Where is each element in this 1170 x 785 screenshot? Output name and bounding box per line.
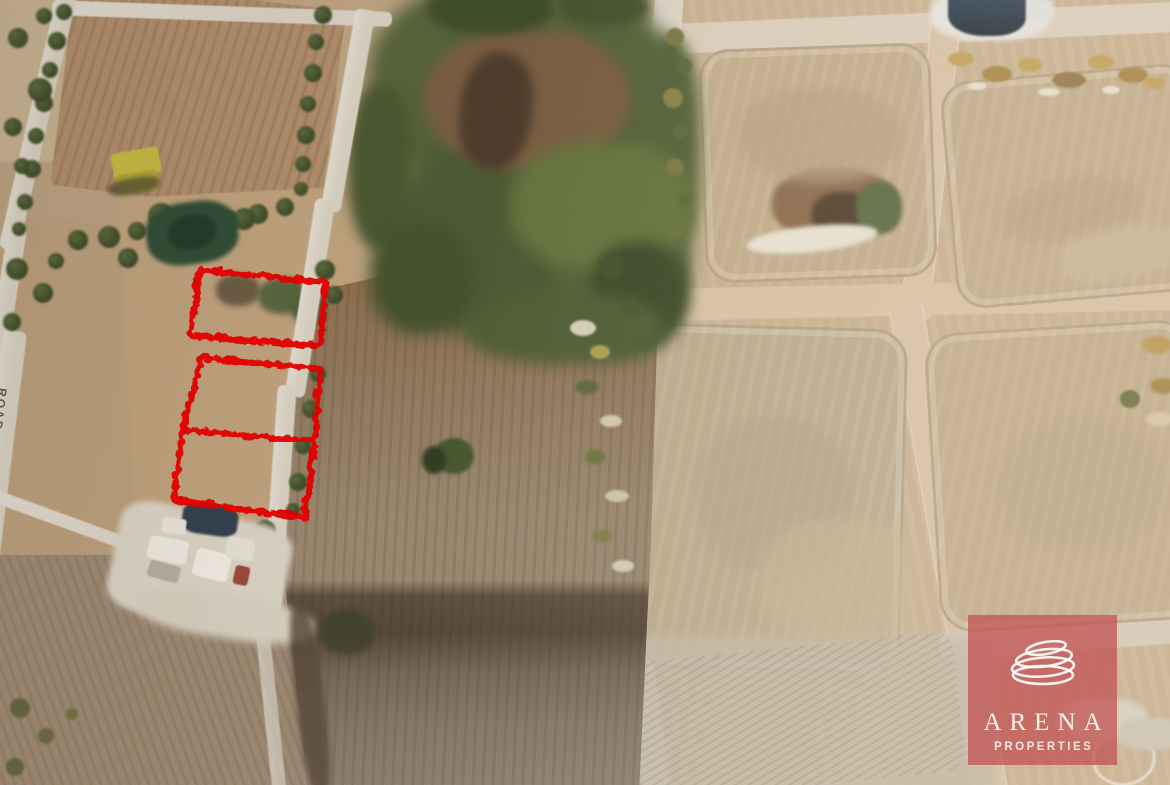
- rubble-patch: [1146, 412, 1170, 426]
- scrub-patch: [605, 490, 629, 502]
- terrain-patch: [1120, 390, 1140, 408]
- scrub-patch: [10, 698, 30, 718]
- rubble-patch: [1038, 88, 1060, 96]
- satellite-map: ROAD ARENA PROPERTIES: [0, 0, 1170, 785]
- scrub-patch: [673, 123, 689, 139]
- scrub-patch: [38, 728, 54, 744]
- rubble-patch: [982, 66, 1012, 82]
- tree: [308, 34, 324, 50]
- scrub-patch: [6, 758, 24, 776]
- terrain-patch: [738, 88, 903, 183]
- tree: [128, 222, 146, 240]
- tree: [28, 128, 44, 144]
- tree: [68, 230, 88, 250]
- terrain-patch: [758, 518, 923, 643]
- tree: [4, 118, 22, 136]
- tree: [28, 78, 52, 102]
- rubble-patch: [1052, 72, 1086, 88]
- rubble-patch: [1143, 77, 1165, 89]
- tree: [286, 503, 300, 517]
- scrub-patch: [66, 708, 78, 720]
- rubble-patch: [1102, 86, 1120, 94]
- tree: [33, 283, 53, 303]
- scrub-patch: [676, 58, 692, 74]
- scrub-patch: [668, 223, 684, 239]
- scrub-patch: [570, 320, 596, 336]
- rubble-patch: [1018, 58, 1042, 72]
- building: [161, 516, 187, 535]
- terrain-patch: [320, 610, 375, 655]
- tree: [36, 8, 52, 24]
- rubble-patch: [948, 52, 974, 66]
- rubble-patch: [968, 82, 986, 90]
- tree: [302, 400, 320, 418]
- tree: [56, 4, 72, 20]
- scrub-patch: [575, 380, 599, 394]
- tree: [48, 32, 66, 50]
- tree: [289, 473, 307, 491]
- watermark-brand: ARENA: [968, 709, 1117, 737]
- tree: [12, 222, 26, 236]
- tree: [276, 198, 294, 216]
- scrub-patch: [600, 415, 622, 427]
- watermark-subtitle: PROPERTIES: [968, 741, 1117, 753]
- tree: [42, 62, 58, 78]
- building: [224, 536, 255, 563]
- rubble-patch: [745, 219, 879, 259]
- tree: [6, 258, 28, 280]
- scrub-patch: [612, 560, 634, 572]
- scrub-patch: [678, 193, 692, 207]
- scrub-patch: [666, 158, 684, 176]
- tree: [310, 366, 326, 382]
- tree: [295, 438, 311, 454]
- rubble-patch: [1142, 336, 1170, 354]
- tree: [98, 226, 120, 248]
- terrain-patch: [998, 418, 1163, 550]
- tree: [118, 248, 138, 268]
- tree: [3, 313, 21, 331]
- tree: [300, 96, 316, 112]
- rubble-patch: [1150, 378, 1170, 394]
- watermark-logo: ARENA PROPERTIES: [968, 615, 1117, 765]
- scrub-patch: [622, 298, 642, 318]
- tree: [315, 260, 335, 280]
- tree: [14, 158, 30, 174]
- arena-rings-icon: [997, 631, 1089, 695]
- scrub-patch: [592, 530, 612, 542]
- rubble-patch: [1088, 55, 1114, 69]
- rubble-patch: [1116, 718, 1170, 750]
- tree: [8, 28, 28, 48]
- scrub-patch: [666, 28, 684, 46]
- tree: [48, 253, 64, 269]
- scrub-patch: [590, 345, 610, 359]
- scrub-patch: [585, 450, 605, 464]
- tree: [294, 182, 308, 196]
- tree: [297, 126, 315, 144]
- scrub-patch: [598, 253, 624, 279]
- tree: [325, 286, 343, 304]
- tree: [17, 194, 33, 210]
- scrub-patch: [663, 88, 683, 108]
- tree: [295, 156, 311, 172]
- tree: [304, 64, 322, 82]
- tree: [314, 6, 332, 24]
